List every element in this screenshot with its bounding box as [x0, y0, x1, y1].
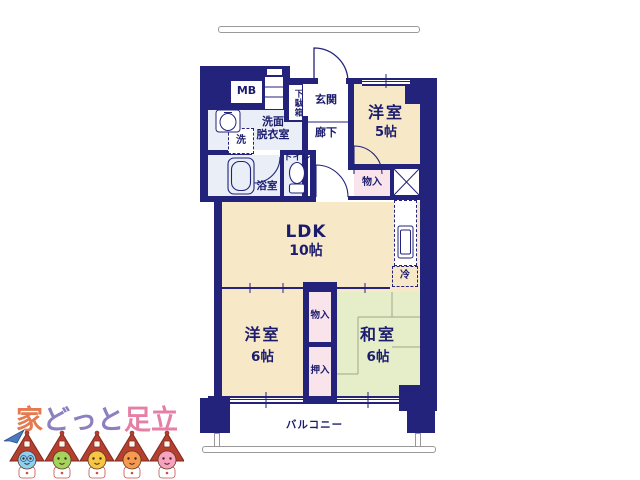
paper-airplane-icon: [4, 430, 24, 443]
label-western5-size: 5帖: [352, 126, 420, 141]
label-storage-upper: 物入: [354, 177, 390, 189]
mascot-face: [88, 451, 106, 469]
label-fridge: 冷: [392, 270, 418, 282]
floor-plan-screenshot: MB 下駄箱 玄関 廊下 洗面 脱衣室 洗 浴室 トイレ 洋室 5帖 物入 LD…: [0, 0, 640, 480]
mascot-eye: [134, 457, 136, 459]
label-washer: 洗: [228, 135, 254, 147]
mascot-window: [129, 441, 135, 447]
label-entrance: 玄関: [310, 94, 342, 107]
entrance-door-arc: [314, 48, 348, 82]
mascot-eye: [22, 457, 24, 459]
mascot-eye: [57, 457, 59, 459]
mascot-eye: [99, 457, 101, 459]
label-japanese-name: 和室: [338, 326, 418, 344]
label-toilet: トイレ: [282, 153, 312, 163]
label-ldk-name: LDK: [258, 223, 354, 243]
mascot-eye: [64, 457, 66, 459]
mascot-eye: [162, 457, 164, 459]
mascot-body-dot: [26, 472, 29, 475]
mascot-eye: [127, 457, 129, 459]
label-washroom-line1: 洗面: [244, 116, 302, 129]
label-western5-name: 洋室: [352, 104, 420, 122]
bathtub-icon: [228, 158, 254, 194]
ldk-door-arc: [316, 165, 348, 197]
x-box-cross: [394, 169, 419, 195]
mascot-row: [10, 431, 184, 478]
label-western6-name: 洋室: [222, 326, 303, 344]
mascot-roof-tip: [95, 431, 99, 435]
mascot-face: [53, 451, 71, 469]
mascot-face: [158, 451, 176, 469]
mascot-eye: [29, 457, 31, 459]
label-balcony: バルコニー: [230, 419, 399, 431]
shaft-louvers: [264, 87, 284, 97]
label-ldk-size: 10帖: [258, 243, 354, 259]
kitchen-sink-icon: [398, 226, 413, 258]
label-closet: 押入: [308, 366, 332, 377]
washbasin-icon: [216, 110, 240, 132]
mascot-window: [59, 441, 65, 447]
mascot-eye: [169, 457, 171, 459]
label-western6-size: 6帖: [222, 350, 303, 366]
label-japanese-size: 6帖: [338, 350, 418, 366]
mascot-face: [123, 451, 141, 469]
label-shoe-cabinet: 下駄箱: [289, 87, 302, 119]
mascot-body-dot: [96, 472, 99, 475]
mascot-body-dot: [131, 472, 134, 475]
mascot-window: [164, 441, 170, 447]
label-meter-box: MB: [230, 85, 263, 98]
western5-door-arc: [354, 146, 382, 174]
mascot-roof-tip: [130, 431, 134, 435]
mascot-window: [24, 441, 30, 447]
toilet-icon: [290, 163, 305, 194]
logo-mascots: [2, 426, 184, 480]
mascot-window: [94, 441, 100, 447]
mascot-body-dot: [166, 472, 169, 475]
label-hallway: 廊下: [310, 127, 342, 140]
mascot-roof-tip: [60, 431, 64, 435]
mascot-body-dot: [61, 472, 64, 475]
label-bath: 浴室: [252, 180, 282, 192]
mascot-roof-tip: [25, 431, 29, 435]
mascot-roof-tip: [165, 431, 169, 435]
mascot-eye: [92, 457, 94, 459]
label-storage-lower: 物入: [308, 311, 332, 322]
